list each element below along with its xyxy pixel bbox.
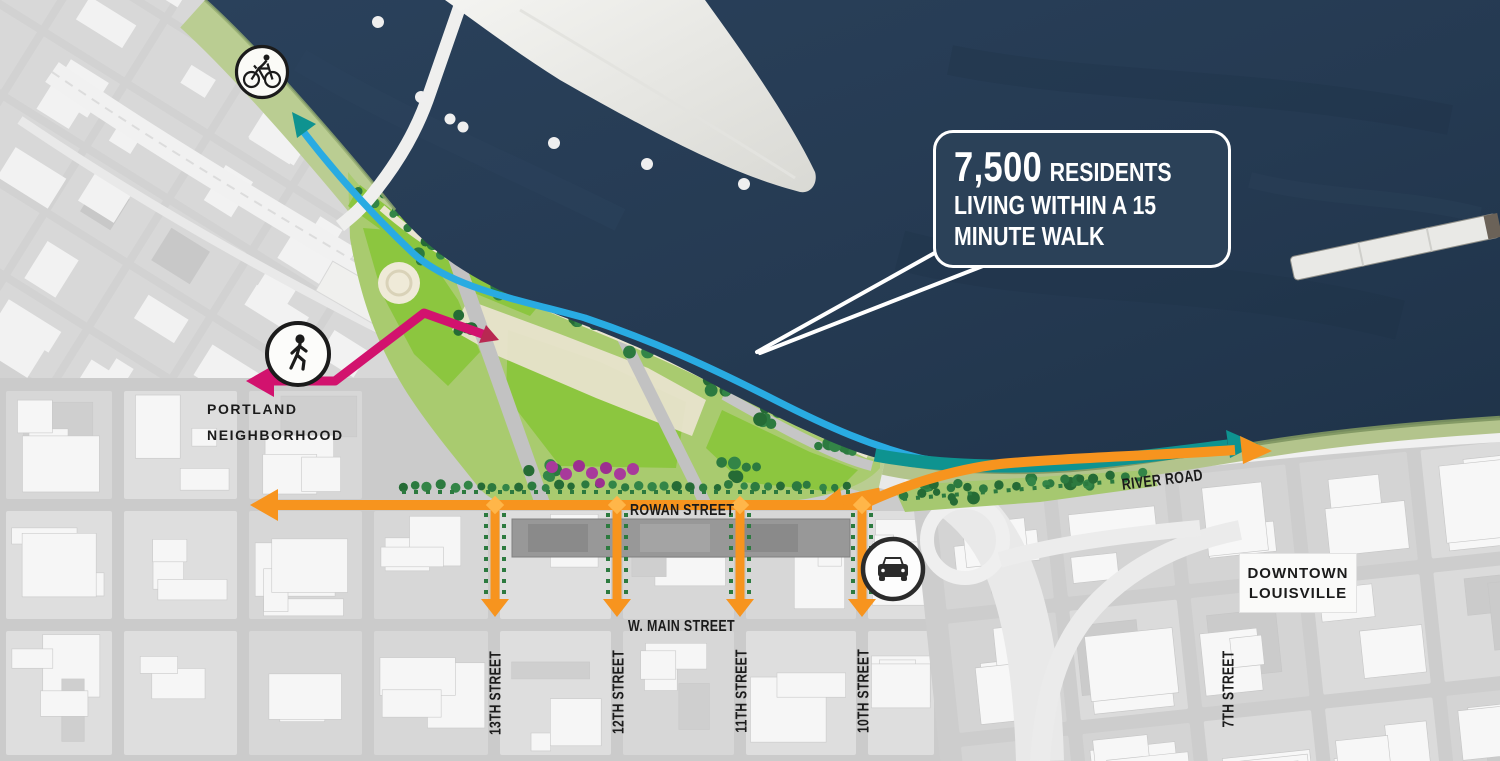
garden-circle (378, 262, 420, 304)
bicycle-icon (237, 47, 288, 98)
callout-number: 7,500 (954, 146, 1042, 188)
residents-callout: 7,500 RESIDENTS LIVING WITHIN A 15 MINUT… (933, 130, 1231, 268)
street-label-10th: 10TH STREET (856, 637, 872, 745)
car-icon (863, 539, 923, 599)
portland-neighborhood-label: PORTLAND NEIGHBORHOOD (207, 396, 344, 448)
pedestrian-icon (267, 323, 329, 385)
street-label-11th: 11TH STREET (734, 638, 750, 745)
street-label-12th: 12TH STREET (611, 638, 627, 746)
callout-line2: LIVING WITHIN A 15 (954, 191, 1228, 219)
downtown-louisville-label: DOWNTOWN LOUISVILLE (1240, 554, 1356, 612)
riverfront-master-plan-map: PORTLAND NEIGHBORHOOD DOWNTOWN LOUISVILL… (0, 0, 1500, 761)
street-label-13th: 13TH STREET (488, 639, 504, 747)
street-label-7th: 7TH STREET (1221, 640, 1237, 739)
warehouse-building (512, 519, 850, 557)
rowan-street-label: ROWAN STREET (630, 503, 764, 519)
callout-line3: MINUTE WALK (954, 222, 1228, 250)
w-main-street-label: W. MAIN STREET (628, 619, 765, 635)
callout-suffix: RESIDENTS (1050, 159, 1172, 185)
map-canvas (0, 0, 1500, 761)
